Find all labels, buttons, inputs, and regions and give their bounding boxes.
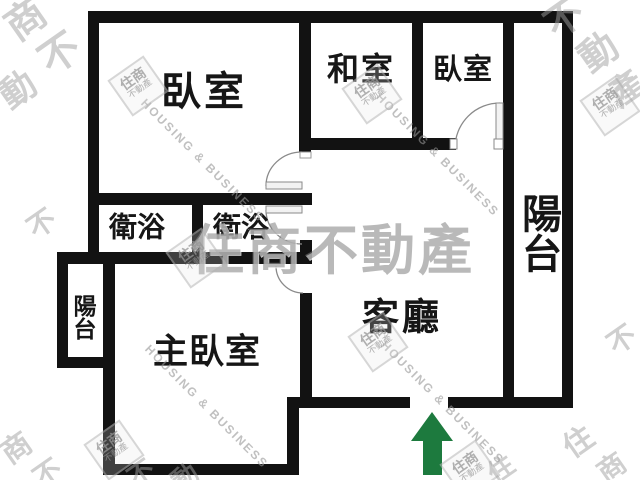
room-label-balcony-right: 陽台 bbox=[514, 193, 562, 273]
door-leaf-bathroom2 bbox=[266, 206, 302, 213]
room-label-bedroom1: 臥室 bbox=[161, 71, 247, 113]
door-arc-bedroom1 bbox=[266, 152, 302, 186]
watermark-char: 不 bbox=[29, 454, 68, 480]
door-arc-bedroom2 bbox=[455, 103, 500, 148]
watermark-logo-box: 住商 不動產 bbox=[439, 439, 500, 480]
watermark-logo-line2: 不動產 bbox=[593, 94, 631, 125]
wall-left-outer bbox=[88, 11, 99, 264]
entrance-arrow bbox=[411, 412, 453, 475]
wall-bathroom-bottom bbox=[57, 252, 312, 264]
watermark-char: 動 bbox=[0, 65, 43, 115]
door-arc-master-bedroom bbox=[276, 266, 303, 293]
room-label-living-room: 客廳 bbox=[362, 299, 442, 338]
room-label-master-bedroom: 主臥室 bbox=[153, 335, 261, 372]
watermark-logo-line1: 住商 bbox=[112, 61, 154, 97]
door-arc-bathroom2 bbox=[266, 210, 302, 244]
watermark-char: 動 bbox=[573, 27, 626, 80]
room-label-bedroom2: 臥室 bbox=[433, 55, 493, 85]
watermark-logo-line1: 住商 bbox=[584, 81, 626, 117]
watermark-char: 不 bbox=[32, 26, 88, 82]
watermark-logo-box: 住商 不動產 bbox=[107, 55, 168, 116]
watermark-char: 產 bbox=[603, 65, 640, 112]
wall-top-outer bbox=[88, 11, 573, 23]
room-label-tatami: 和室 bbox=[327, 53, 395, 87]
wall-tatami-right bbox=[412, 11, 423, 150]
wall-balcony-left-bottom bbox=[57, 357, 115, 368]
floor-plan: 臥室 和室 臥室 陽台 衛浴 衛浴 陽台 主臥室 客廳 住商不動產 HOUSIN… bbox=[0, 0, 640, 480]
watermark-char: 不 bbox=[23, 204, 62, 243]
door-leaf-bedroom2 bbox=[496, 103, 503, 148]
wall-living-master-divider bbox=[300, 293, 312, 403]
wall-bathroom-divider bbox=[192, 193, 203, 264]
wall-balcony-left-outer bbox=[57, 252, 68, 368]
watermark-char: 商 bbox=[0, 0, 54, 48]
wall-bedroom2-right bbox=[503, 11, 514, 408]
door-jamb-bedroom1 bbox=[300, 152, 311, 158]
wall-bottom-right-of-entry bbox=[448, 397, 573, 408]
watermark-char: 住 bbox=[558, 422, 600, 464]
wall-tatami-bottom bbox=[299, 138, 456, 150]
wall-master-bottom bbox=[103, 464, 299, 475]
watermark-logo-line2: 不動產 bbox=[121, 74, 159, 105]
watermark-char: 商 bbox=[0, 428, 38, 470]
watermark-char: 商 bbox=[593, 448, 632, 480]
watermark-logo-line2: 不動產 bbox=[453, 458, 491, 480]
wall-bathroom2-right bbox=[300, 240, 312, 264]
wall-right-outer bbox=[562, 11, 573, 408]
watermark-logo-line1: 住商 bbox=[444, 445, 486, 480]
door-jamb-bedroom2-right bbox=[494, 139, 503, 149]
room-label-bathroom-left: 衛浴 bbox=[109, 212, 165, 241]
watermark-logo-box: 住商 不動產 bbox=[579, 75, 640, 136]
door-leaf-bedroom1 bbox=[266, 182, 302, 189]
room-label-balcony-left: 陽台 bbox=[70, 294, 96, 340]
watermark-char: 不 bbox=[603, 320, 640, 359]
wall-bedroom1-right bbox=[299, 11, 311, 152]
watermark-char: 住 bbox=[483, 451, 519, 480]
room-label-bathroom-right: 衛浴 bbox=[213, 212, 269, 241]
watermark-brand-en: HOUSING & BUSINESS bbox=[373, 90, 502, 219]
